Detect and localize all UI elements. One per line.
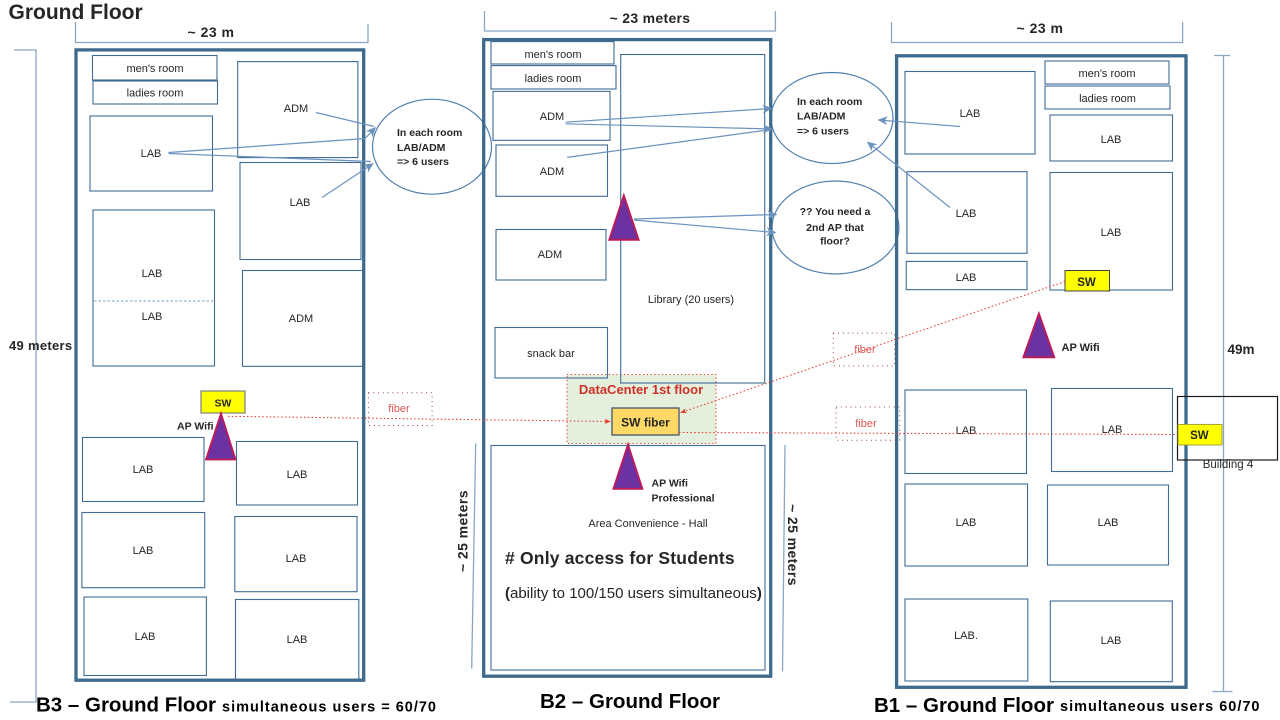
svg-text:ADM: ADM xyxy=(289,313,313,325)
svg-text:LAB: LAB xyxy=(286,553,307,565)
svg-text:Building 4: Building 4 xyxy=(1203,459,1254,471)
svg-text:LAB: LAB xyxy=(956,517,977,529)
svg-text:SW fiber: SW fiber xyxy=(621,416,670,430)
svg-text:LAB: LAB xyxy=(1098,517,1119,529)
svg-text:LAB: LAB xyxy=(956,425,977,437)
svg-text:LAB/ADM: LAB/ADM xyxy=(797,111,846,123)
svg-text:In each room: In each room xyxy=(797,96,862,108)
svg-text:ADM: ADM xyxy=(540,111,564,123)
svg-text:LAB/ADM: LAB/ADM xyxy=(397,142,446,154)
svg-text:LAB: LAB xyxy=(142,311,163,323)
svg-text:LAB: LAB xyxy=(142,268,163,280)
svg-text:DataCenter 1st floor: DataCenter 1st floor xyxy=(579,382,703,397)
svg-text:LAB: LAB xyxy=(290,197,311,209)
svg-text:B2 – Ground Floor: B2 – Ground Floor xyxy=(540,690,720,713)
svg-text:LAB: LAB xyxy=(135,631,156,643)
svg-text:B1 – Ground Floor: B1 – Ground Floor xyxy=(874,694,1054,717)
svg-text:SW: SW xyxy=(1077,277,1096,289)
svg-text:men's room: men's room xyxy=(524,49,581,61)
svg-text:LAB: LAB xyxy=(1101,227,1122,239)
svg-text:49 meters: 49 meters xyxy=(9,338,72,353)
svg-text:~ 25 meters: ~ 25 meters xyxy=(455,490,471,572)
svg-text:~ 23 meters: ~ 23 meters xyxy=(610,10,691,26)
svg-text:LAB: LAB xyxy=(287,634,308,646)
svg-text:AP Wifi: AP Wifi xyxy=(1062,342,1100,354)
svg-text:~ 25 meters: ~ 25 meters xyxy=(785,504,801,586)
svg-text:49m: 49m xyxy=(1228,342,1255,357)
svg-text:LAB: LAB xyxy=(956,208,977,220)
svg-text:Area Convenience - Hall: Area Convenience - Hall xyxy=(588,518,707,530)
svg-text:B3 – Ground Floor: B3 – Ground Floor xyxy=(36,694,216,717)
svg-text:ladies room: ladies room xyxy=(525,73,582,85)
svg-text:~ 23 m: ~ 23 m xyxy=(1017,20,1064,36)
svg-text:~ 23 m: ~ 23 m xyxy=(188,24,235,40)
svg-text:AP Wifi: AP Wifi xyxy=(652,478,689,490)
svg-text:ADM: ADM xyxy=(540,166,564,178)
svg-text:AP Wifi: AP Wifi xyxy=(177,421,214,433)
svg-text:SW: SW xyxy=(215,398,232,410)
svg-text:Professional: Professional xyxy=(652,493,715,505)
svg-text:snack bar: snack bar xyxy=(527,348,575,360)
svg-text:floor?: floor? xyxy=(820,236,850,248)
svg-text:(ability to 100/150 users simu: (ability to 100/150 users simultaneous) xyxy=(505,585,762,602)
svg-text:ADM: ADM xyxy=(538,249,562,261)
svg-text:?? You need a: ?? You need a xyxy=(800,206,871,218)
svg-text:# Only access for Students: # Only access for Students xyxy=(505,548,735,568)
svg-text:simultaneous users = 60/70: simultaneous users = 60/70 xyxy=(222,700,437,716)
svg-text:=> 6 users: => 6 users xyxy=(397,156,449,168)
svg-text:Ground Floor: Ground Floor xyxy=(9,1,143,24)
svg-text:LAB: LAB xyxy=(960,108,981,120)
svg-text:simultaneous users 60/70: simultaneous users 60/70 xyxy=(1060,699,1261,715)
svg-text:Library (20 users): Library (20 users) xyxy=(648,294,734,306)
svg-text:SW: SW xyxy=(1190,430,1209,442)
svg-text:2nd AP that: 2nd AP that xyxy=(806,222,864,234)
svg-text:LAB: LAB xyxy=(133,545,154,557)
svg-text:LAB: LAB xyxy=(1101,134,1122,146)
svg-text:LAB: LAB xyxy=(956,272,977,284)
svg-text:fiber: fiber xyxy=(854,344,876,356)
svg-text:men's room: men's room xyxy=(1078,68,1135,80)
svg-text:LAB.: LAB. xyxy=(954,630,978,642)
svg-text:ladies room: ladies room xyxy=(1079,93,1136,105)
svg-text:LAB: LAB xyxy=(141,148,162,160)
svg-text:fiber: fiber xyxy=(855,418,877,430)
svg-text:ADM: ADM xyxy=(284,103,308,115)
svg-text:LAB: LAB xyxy=(133,464,154,476)
svg-text:men's room: men's room xyxy=(126,63,183,75)
svg-text:ladies room: ladies room xyxy=(127,88,184,100)
svg-text:LAB: LAB xyxy=(1101,635,1122,647)
svg-text:=> 6 users: => 6 users xyxy=(797,126,849,138)
svg-text:fiber: fiber xyxy=(388,403,410,415)
svg-text:LAB: LAB xyxy=(287,469,308,481)
svg-text:In each room: In each room xyxy=(397,127,462,139)
